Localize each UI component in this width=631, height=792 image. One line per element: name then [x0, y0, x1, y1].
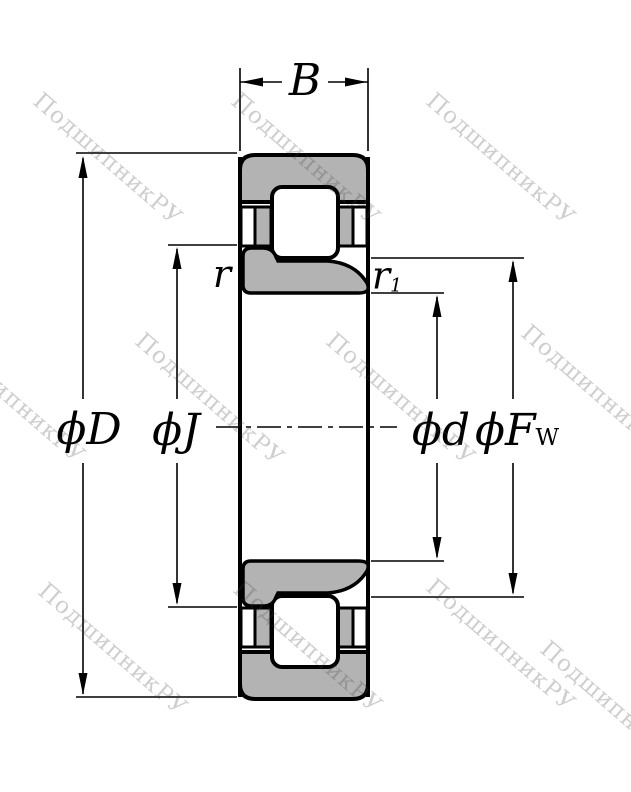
arrow-j-up — [173, 247, 182, 269]
arrow-bore-up — [433, 295, 442, 317]
label-rib-diameter-text: ϕJ — [152, 405, 200, 456]
arrow-d-down — [79, 673, 88, 695]
cage-bottom-left-bar — [255, 608, 271, 647]
arrow-bore-down — [433, 537, 442, 559]
label-bore-diameter: ϕd — [412, 409, 470, 453]
label-raceway-sub: W — [536, 425, 560, 451]
roller-bottom — [272, 596, 338, 667]
label-bore-diameter-text: ϕd — [412, 405, 470, 456]
label-raceway-diameter: ϕFW — [475, 409, 559, 453]
bearing-drawing-canvas: B ϕD ϕJ ϕd ϕFW r r1 ПодшипникРУПодшипник… — [0, 0, 631, 792]
arrow-b-right — [345, 78, 367, 87]
arrow-j-down — [173, 583, 182, 605]
label-fillet-r-text: r — [213, 252, 231, 296]
arrow-fw-up — [509, 260, 518, 282]
label-width-b: B — [289, 59, 321, 103]
label-fillet-r1-main: r — [372, 253, 390, 297]
label-outer-diameter-text: ϕD — [56, 404, 121, 455]
arrow-d-up — [79, 156, 88, 178]
roller-top — [272, 187, 338, 258]
bearing-cross-section-svg — [0, 0, 631, 792]
label-fillet-r1-sub: 1 — [390, 275, 402, 297]
label-width-b-text: B — [289, 55, 321, 106]
arrow-b-left — [241, 78, 263, 87]
label-outer-diameter: ϕD — [56, 408, 121, 452]
cage-top-left-bar — [255, 207, 271, 246]
label-rib-diameter: ϕJ — [152, 409, 200, 453]
label-fillet-r1: r1 — [372, 256, 402, 295]
arrow-fw-down — [509, 573, 518, 595]
label-fillet-r: r — [213, 255, 231, 293]
label-raceway-main: ϕF — [475, 405, 536, 456]
